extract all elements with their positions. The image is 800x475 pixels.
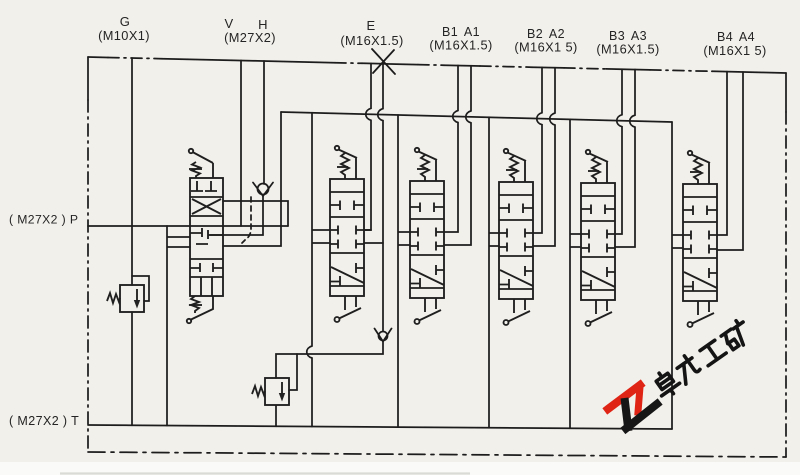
svg-text:(M16X1.5): (M16X1.5): [340, 33, 403, 48]
svg-text:(M16X1.5): (M16X1.5): [429, 38, 492, 53]
svg-text:( M27X2 ) T: ( M27X2 ) T: [9, 414, 79, 428]
svg-text:G: G: [120, 14, 131, 29]
svg-text:(M16X1 5): (M16X1 5): [703, 43, 766, 58]
svg-text:(M27X2): (M27X2): [224, 30, 276, 45]
svg-text:(M16X1 5): (M16X1 5): [514, 40, 577, 55]
svg-text:(M16X1.5): (M16X1.5): [596, 42, 659, 57]
svg-text:( M27X2 ) P: ( M27X2 ) P: [9, 213, 78, 227]
svg-text:(M10X1): (M10X1): [98, 28, 150, 43]
svg-text:V: V: [224, 16, 233, 31]
svg-text:E: E: [366, 18, 375, 33]
svg-text:B4 A4: B4 A4: [717, 30, 755, 44]
